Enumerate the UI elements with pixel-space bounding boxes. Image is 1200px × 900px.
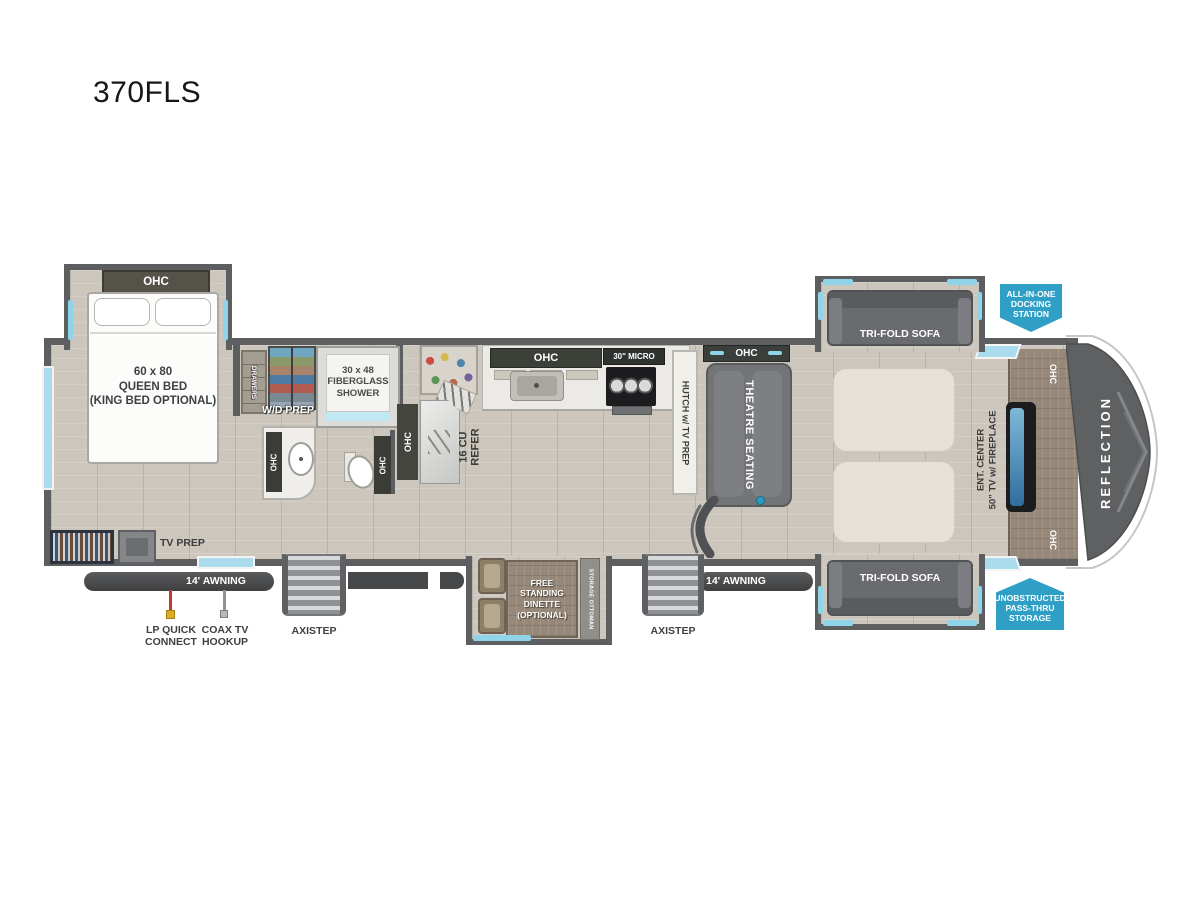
hutch: HUTCH w/ TV PREP bbox=[672, 350, 698, 495]
refrigerator-hatch bbox=[428, 430, 450, 454]
ent-ohc-top-wrap: OHC bbox=[1040, 352, 1066, 396]
theatre-label-wrap: THEATRE SEATING bbox=[706, 363, 792, 507]
ent-ohc-bottom-label: OHC bbox=[1048, 530, 1058, 550]
lp-quick-connect-marker bbox=[169, 590, 172, 612]
bed-pillow-left bbox=[94, 298, 150, 326]
oven-drawer bbox=[612, 406, 652, 415]
toilet-ohc-cabinet: OHC bbox=[374, 436, 391, 494]
drawers-label: DRAWERS bbox=[251, 365, 258, 398]
kitchen-cabinet-door bbox=[566, 370, 598, 380]
dinette-slide-accent bbox=[473, 635, 531, 641]
bedroom-slide-window-right bbox=[223, 300, 228, 340]
awning-left: 14' AWNING bbox=[84, 572, 274, 591]
reflection-logo-wrap: REFLECTION bbox=[1086, 380, 1126, 525]
axistep-right bbox=[642, 554, 704, 616]
awning-right-label: 14' AWNING bbox=[706, 575, 766, 587]
awning-right: 14' AWNING bbox=[698, 572, 813, 591]
sofa-bottom-label: TRI-FOLD SOFA bbox=[827, 570, 973, 586]
sofa-top-label: TRI-FOLD SOFA bbox=[827, 326, 973, 342]
page-title: 370FLS bbox=[93, 76, 201, 110]
bedroom-slide-window-left bbox=[68, 300, 73, 340]
bottom-wall-window bbox=[197, 556, 255, 569]
awning-left-label: 14' AWNING bbox=[186, 575, 246, 587]
bed-label: 60 x 80 QUEEN BED (KING BED OPTIONAL) bbox=[87, 352, 219, 422]
toilet-ohc-label: OHC bbox=[378, 456, 387, 474]
vanity-ohc-label: OHC bbox=[270, 453, 279, 471]
theatre-label: THEATRE SEATING bbox=[743, 380, 755, 490]
wd-prep-label: W/D PREP bbox=[252, 402, 324, 418]
area-rug-bottom bbox=[833, 461, 955, 543]
coax-hookup-label: COAX TV HOOKUP bbox=[192, 623, 258, 649]
sofa-bottom-window-right bbox=[947, 620, 977, 626]
left-wall-window bbox=[42, 366, 54, 490]
coax-hookup-tip bbox=[220, 610, 228, 618]
tv-dresser-top bbox=[126, 538, 148, 556]
entry-door-swing bbox=[688, 496, 750, 558]
coax-hookup-marker bbox=[223, 590, 226, 612]
sofa-top-side-window-left bbox=[818, 292, 823, 320]
slide-rail-right bbox=[440, 572, 464, 589]
tv-screen bbox=[1010, 408, 1024, 506]
dinette-chair-top-seat bbox=[484, 564, 500, 588]
sofa-bottom-side-window-left bbox=[818, 586, 823, 614]
ent-ohc-top-label: OHC bbox=[1048, 364, 1058, 384]
shower-label: 30 x 48 FIBERGLASS SHOWER bbox=[322, 356, 394, 408]
passthru-storage-badge: UNOBSTRUCTED PASS-THRU STORAGE bbox=[996, 578, 1064, 630]
sofa-top-side-window-right bbox=[977, 292, 982, 320]
sofa-bottom-window-left bbox=[823, 620, 853, 626]
shower-glass bbox=[326, 412, 390, 421]
sofa-bottom-side-window-right bbox=[977, 586, 982, 614]
bedroom-bath-wall bbox=[233, 344, 240, 416]
sofa-bottom-backrest bbox=[829, 598, 971, 614]
bedroom-ohc-cabinet: OHC bbox=[102, 270, 210, 294]
axistep-right-label: AXISTEP bbox=[641, 624, 705, 638]
refer-label: 16 CU REFER bbox=[458, 428, 482, 465]
vanity-drain bbox=[299, 457, 303, 461]
refer-ohc-cabinet: OHC bbox=[397, 404, 418, 480]
bed-seam bbox=[90, 332, 216, 334]
slide-rail-left bbox=[348, 572, 428, 589]
dinette-label: FREE STANDING DINETTE (OPTIONAL) bbox=[517, 578, 567, 621]
reflection-logo: REFLECTION bbox=[1099, 396, 1114, 509]
ent-ohc-bottom-wrap: OHC bbox=[1040, 518, 1066, 562]
cooktop bbox=[606, 367, 656, 406]
dinette-table: FREE STANDING DINETTE (OPTIONAL) bbox=[506, 560, 578, 638]
sofa-top-backrest bbox=[829, 292, 971, 308]
theatre-ohc-accent-left bbox=[710, 351, 724, 355]
ent-label-wrap: ENT. CENTER 50" TV w/ FIREPLACE bbox=[966, 398, 1008, 522]
sofa-top-window-left bbox=[823, 279, 853, 285]
floorplan-page: 370FLS OHC 60 x 80 QUEEN BED (KING BED O… bbox=[0, 0, 1200, 900]
axistep-left-label: AXISTEP bbox=[282, 624, 346, 638]
vanity-ohc-cabinet: OHC bbox=[266, 432, 282, 492]
microwave: 30" MICRO bbox=[603, 348, 665, 365]
refer-label-wrap: 16 CU REFER bbox=[448, 418, 492, 476]
wardrobe-divider bbox=[291, 346, 293, 410]
kitchen-ohc-cabinet: OHC bbox=[490, 348, 602, 368]
dinette-chair-bottom-seat bbox=[484, 604, 500, 628]
tv-prep-label: TV PREP bbox=[160, 537, 205, 549]
kitchen-faucet bbox=[534, 383, 539, 388]
lp-quick-connect-tip bbox=[166, 610, 175, 619]
bed-pillow-right bbox=[155, 298, 211, 326]
sofa-top-window-right bbox=[947, 279, 977, 285]
hutch-label: HUTCH w/ TV PREP bbox=[680, 380, 690, 465]
docking-station-badge: ALL-IN-ONE DOCKING STATION bbox=[1000, 284, 1062, 332]
refer-ohc-label: OHC bbox=[403, 432, 413, 452]
bookshelf bbox=[50, 530, 114, 564]
storage-ottoman-label: STORAGE OTTOMAN bbox=[587, 569, 593, 630]
ent-label: ENT. CENTER 50" TV w/ FIREPLACE bbox=[975, 411, 999, 510]
axistep-left bbox=[282, 554, 346, 616]
area-rug-top bbox=[833, 368, 955, 452]
storage-ottoman: STORAGE OTTOMAN bbox=[580, 558, 600, 640]
theatre-ohc-accent-right bbox=[768, 351, 782, 355]
cup-holder-accent bbox=[756, 496, 765, 505]
